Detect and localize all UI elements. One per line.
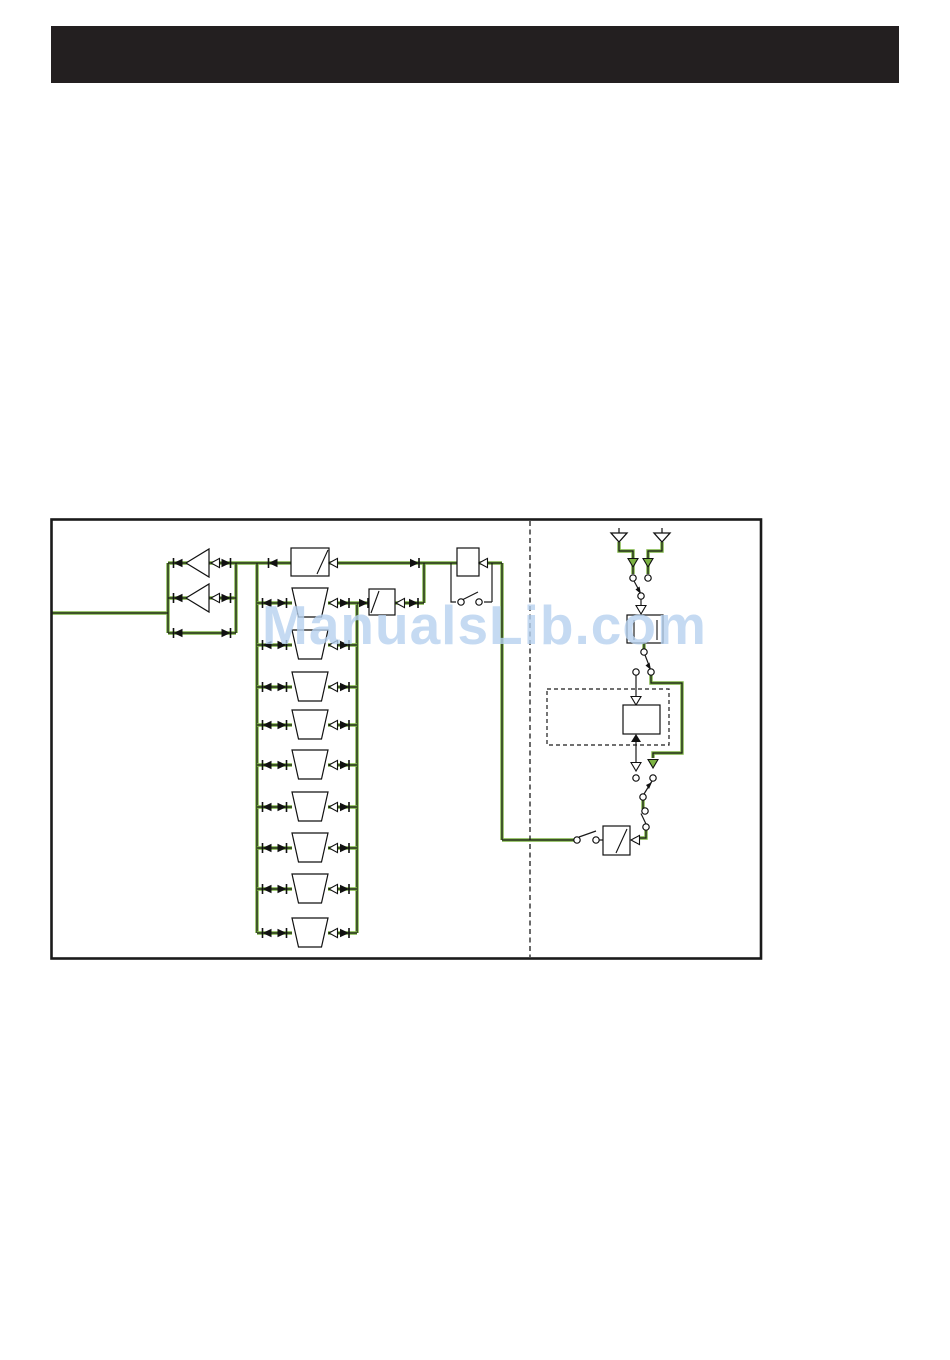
antenna-icon [611, 533, 627, 542]
amplifier-icon [186, 549, 209, 577]
row2-branch-filter [359, 589, 418, 615]
bpf-trapezoid [292, 750, 328, 779]
block-diagram [0, 0, 950, 1360]
bpf-row [257, 918, 357, 947]
bpf-row [257, 672, 357, 701]
small-filter-box [369, 589, 395, 615]
antenna-unit-box [627, 615, 663, 643]
bpf-trapezoid [292, 588, 328, 617]
bottom-filter-group [603, 826, 640, 855]
diagram-border [52, 520, 762, 959]
signal-path-highlight [52, 542, 682, 933]
control-box [623, 705, 660, 734]
bpf-row [257, 833, 357, 862]
filter-box-wide [291, 548, 329, 576]
amplifier-icon [186, 584, 209, 612]
bpf-row [257, 792, 357, 821]
bpf-trapezoid [292, 833, 328, 862]
bpf-row [257, 710, 357, 739]
bpf-trapezoid [292, 918, 328, 947]
bpf-row [257, 874, 357, 903]
wires [52, 542, 682, 933]
amplifier-section [174, 549, 231, 638]
bpf-trapezoid [292, 710, 328, 739]
bpf-row [257, 630, 357, 659]
antenna-icon [654, 533, 670, 542]
attenuator-box [457, 548, 479, 576]
manual-page: ManualsLib.com [0, 0, 950, 1360]
bpf-trapezoid [292, 672, 328, 701]
bpf-trapezoid [292, 792, 328, 821]
bpf-row [257, 588, 357, 617]
up-arrow [631, 734, 641, 742]
bpf-row [257, 750, 357, 779]
bpf-trapezoid [292, 630, 328, 659]
control-box-group [623, 697, 660, 772]
bpf-trapezoid [292, 874, 328, 903]
bandpass-filter-bank [257, 588, 357, 947]
